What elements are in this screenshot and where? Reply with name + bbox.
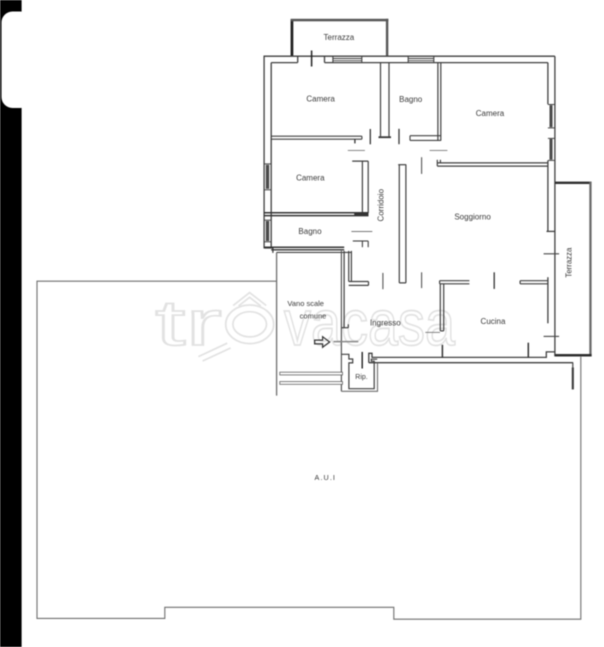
svg-text:A.U.I: A.U.I <box>315 473 336 482</box>
svg-text:comune: comune <box>300 311 327 320</box>
svg-text:Camera: Camera <box>306 95 335 104</box>
svg-text:Camera: Camera <box>476 109 505 118</box>
svg-text:Terrazza: Terrazza <box>565 247 574 278</box>
svg-text:Cucina: Cucina <box>481 317 506 326</box>
svg-text:Terrazza: Terrazza <box>324 33 355 42</box>
svg-text:Ingresso: Ingresso <box>370 318 401 327</box>
svg-text:Bagno: Bagno <box>399 95 423 104</box>
svg-text:Bagno: Bagno <box>298 227 322 236</box>
svg-text:Corridoio: Corridoio <box>376 188 385 221</box>
svg-text:Rip.: Rip. <box>355 374 368 381</box>
svg-text:tr: tr <box>155 287 222 359</box>
svg-text:Camera: Camera <box>296 173 325 182</box>
svg-text:Soggiorno: Soggiorno <box>454 213 491 222</box>
svg-text:Vano scale: Vano scale <box>287 299 324 308</box>
